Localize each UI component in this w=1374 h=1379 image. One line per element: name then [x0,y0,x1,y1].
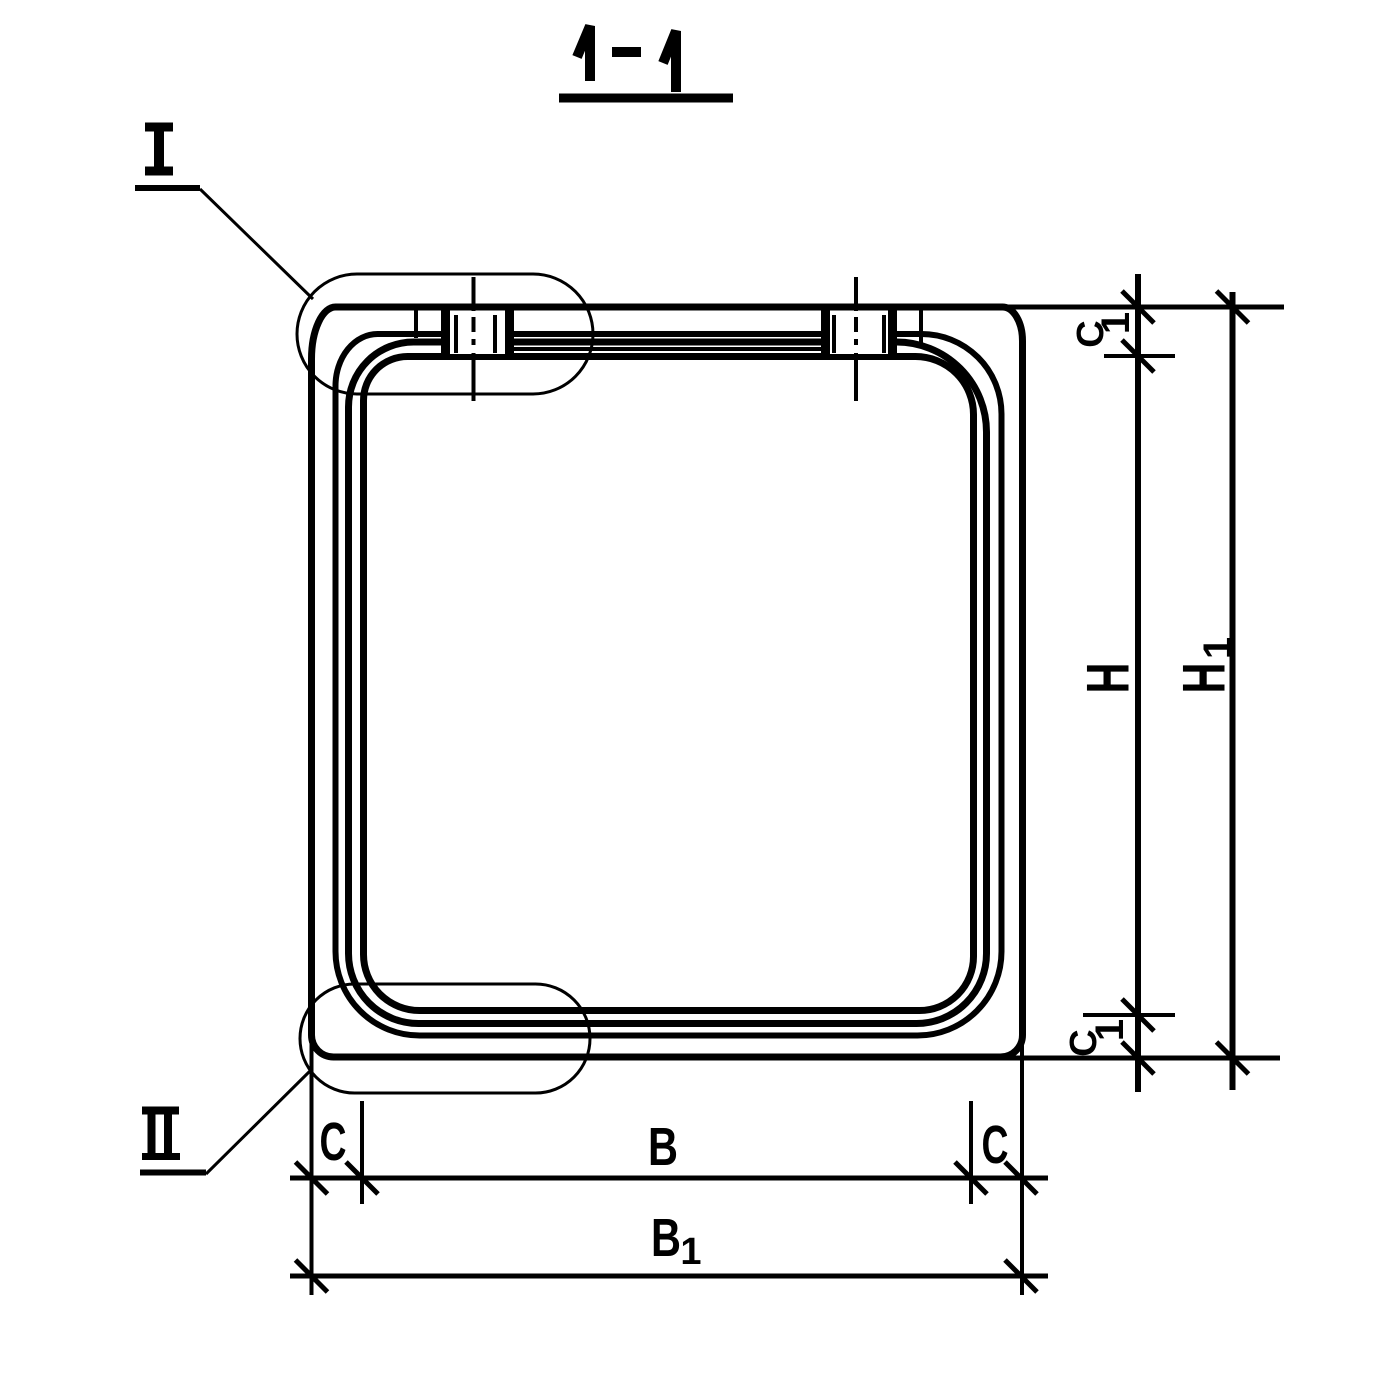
svg-text:H: H [1075,663,1142,694]
svg-text:1: 1 [680,1231,701,1273]
svg-text:B: B [651,1208,681,1268]
svg-text:B: B [648,1117,678,1177]
svg-text:C: C [320,1112,347,1172]
svg-text:C: C [982,1115,1009,1175]
svg-text:1: 1 [1196,637,1240,659]
svg-text:1: 1 [1088,1019,1132,1041]
svg-text:1: 1 [1094,312,1138,334]
svg-text:H: H [1171,663,1238,694]
